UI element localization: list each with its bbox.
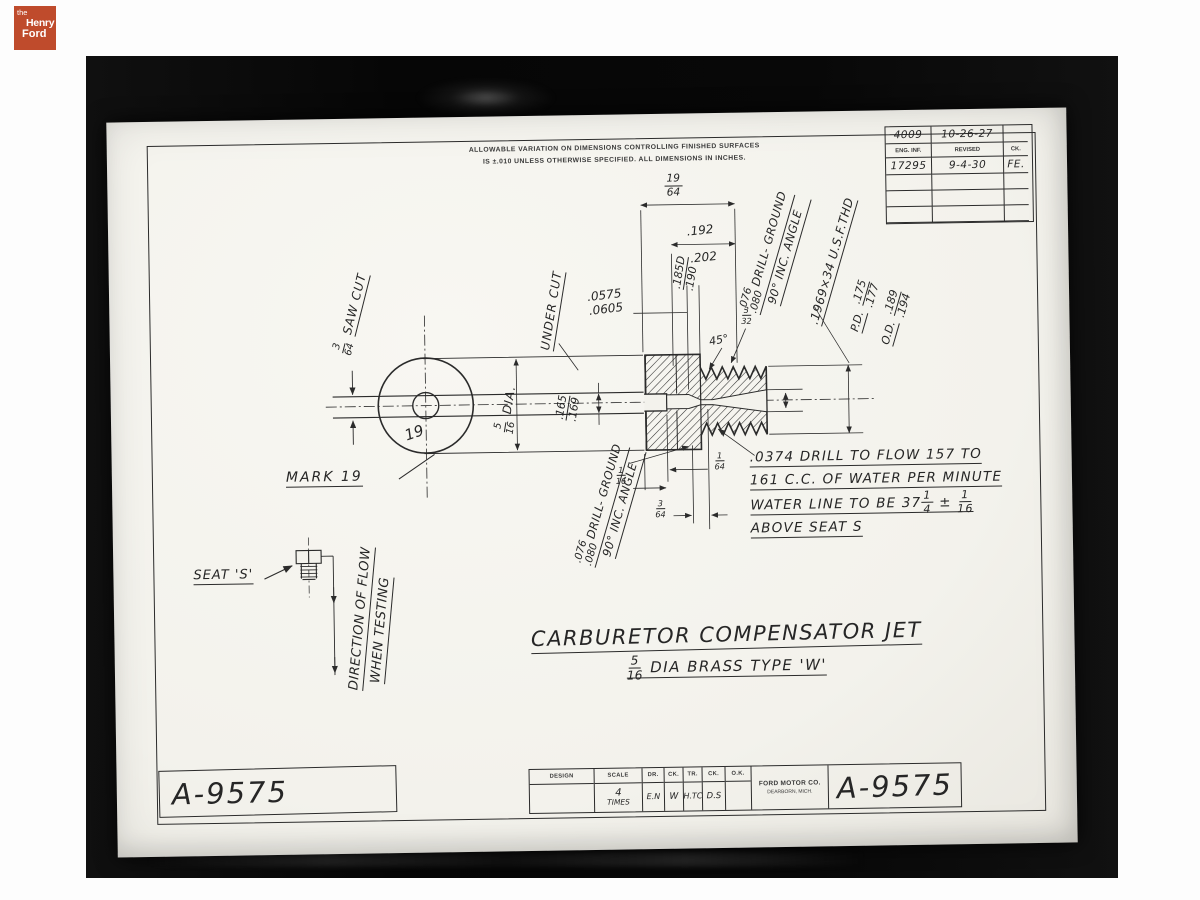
logo-ford: Ford [22, 29, 56, 40]
flow-test-note: .0374 DRILL TO FLOW 157 TO 161 C.C. OF W… [749, 442, 1035, 541]
revision-entry-date: 10-26-27 [931, 125, 1003, 143]
title-block-ck1: CK. W [664, 768, 684, 811]
revision-header-revised: REVISED [932, 142, 1004, 157]
title-block-ok: O.K. [725, 767, 752, 810]
revision-row-date: 9-4-30 [932, 156, 1004, 174]
seat-screw [264, 537, 335, 676]
section-view [644, 353, 768, 450]
note-line3: WATER LINE TO BE 3714 ± 116 [750, 494, 974, 516]
title-block-design: DESIGN [530, 769, 596, 813]
scan-smudge [416, 78, 556, 118]
mark-19-label: MARK 19 [286, 469, 363, 488]
revision-header-ck: CK. [1004, 142, 1028, 156]
dim-1-64: 164 [714, 451, 725, 471]
scanned-blueprint-page: the Henry Ford [0, 0, 1200, 900]
revision-table: 4009 10-26-27 ENG. INF. REVISED CK. 1729… [884, 124, 1034, 224]
logo-the: the [17, 9, 56, 17]
drawing-number: A-9575 [171, 774, 288, 811]
revision-entry-number: 4009 [885, 127, 931, 145]
revision-entry-ck [1003, 125, 1027, 142]
drawing-number-box: A-9575 [158, 765, 397, 818]
revision-row-number: 17295 [886, 158, 932, 176]
note-line1: .0374 DRILL TO FLOW 157 TO [750, 446, 983, 468]
title-block-scale: SCALE 4 TIMES [595, 768, 644, 812]
drawing-sheet: ALLOWABLE VARIATION ON DIMENSIONS CONTRO… [106, 108, 1077, 858]
title-block: DESIGN SCALE 4 TIMES DR. E.N CK. W [528, 762, 962, 814]
slot-width-dimension: .165.169 [554, 394, 582, 422]
overall-length-dimension: 1964 [664, 173, 682, 198]
thread-length-upper: .192 [686, 222, 714, 239]
note-line4: ABOVE SEAT S [751, 519, 863, 539]
dim-1-16: 116 [616, 466, 627, 486]
title-block-tr: TR. H.TC [683, 767, 703, 810]
seat-s-label: SEAT 'S' [193, 567, 253, 585]
revision-row-ck: FE. [1004, 156, 1028, 173]
logo-henry: Henry [26, 18, 56, 29]
thread-length-lower: .202 [689, 249, 717, 266]
title-block-number: A-9575 [828, 763, 961, 808]
drawing-subtitle: 516 DIA BRASS TYPE 'W' [627, 652, 828, 683]
photo-background: ALLOWABLE VARIATION ON DIMENSIONS CONTRO… [86, 56, 1118, 878]
dim-3-64: 364 [655, 499, 666, 519]
title-block-ck2: CK. D.S [702, 767, 726, 810]
title-block-dr: DR. E.N [642, 768, 665, 811]
henry-ford-logo: the Henry Ford [14, 6, 56, 50]
title-block-company: FORD MOTOR CO. DEARBORN, MICH. [751, 765, 829, 809]
orifice-dimension: .0575 .0605 [586, 287, 623, 319]
revision-header-eng-inf: ENG. INF. [886, 144, 932, 159]
